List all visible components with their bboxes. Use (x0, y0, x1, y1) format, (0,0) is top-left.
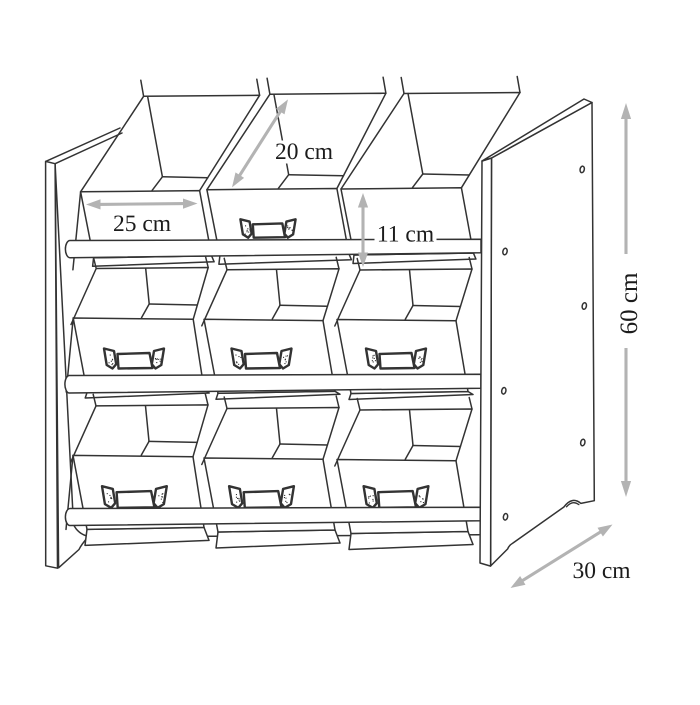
svg-text:30 cm: 30 cm (572, 558, 630, 584)
svg-text:60 cm: 60 cm (616, 272, 643, 334)
svg-text:11 cm: 11 cm (377, 222, 434, 248)
svg-text:20 cm: 20 cm (275, 139, 333, 165)
svg-text:25 cm: 25 cm (113, 211, 171, 237)
